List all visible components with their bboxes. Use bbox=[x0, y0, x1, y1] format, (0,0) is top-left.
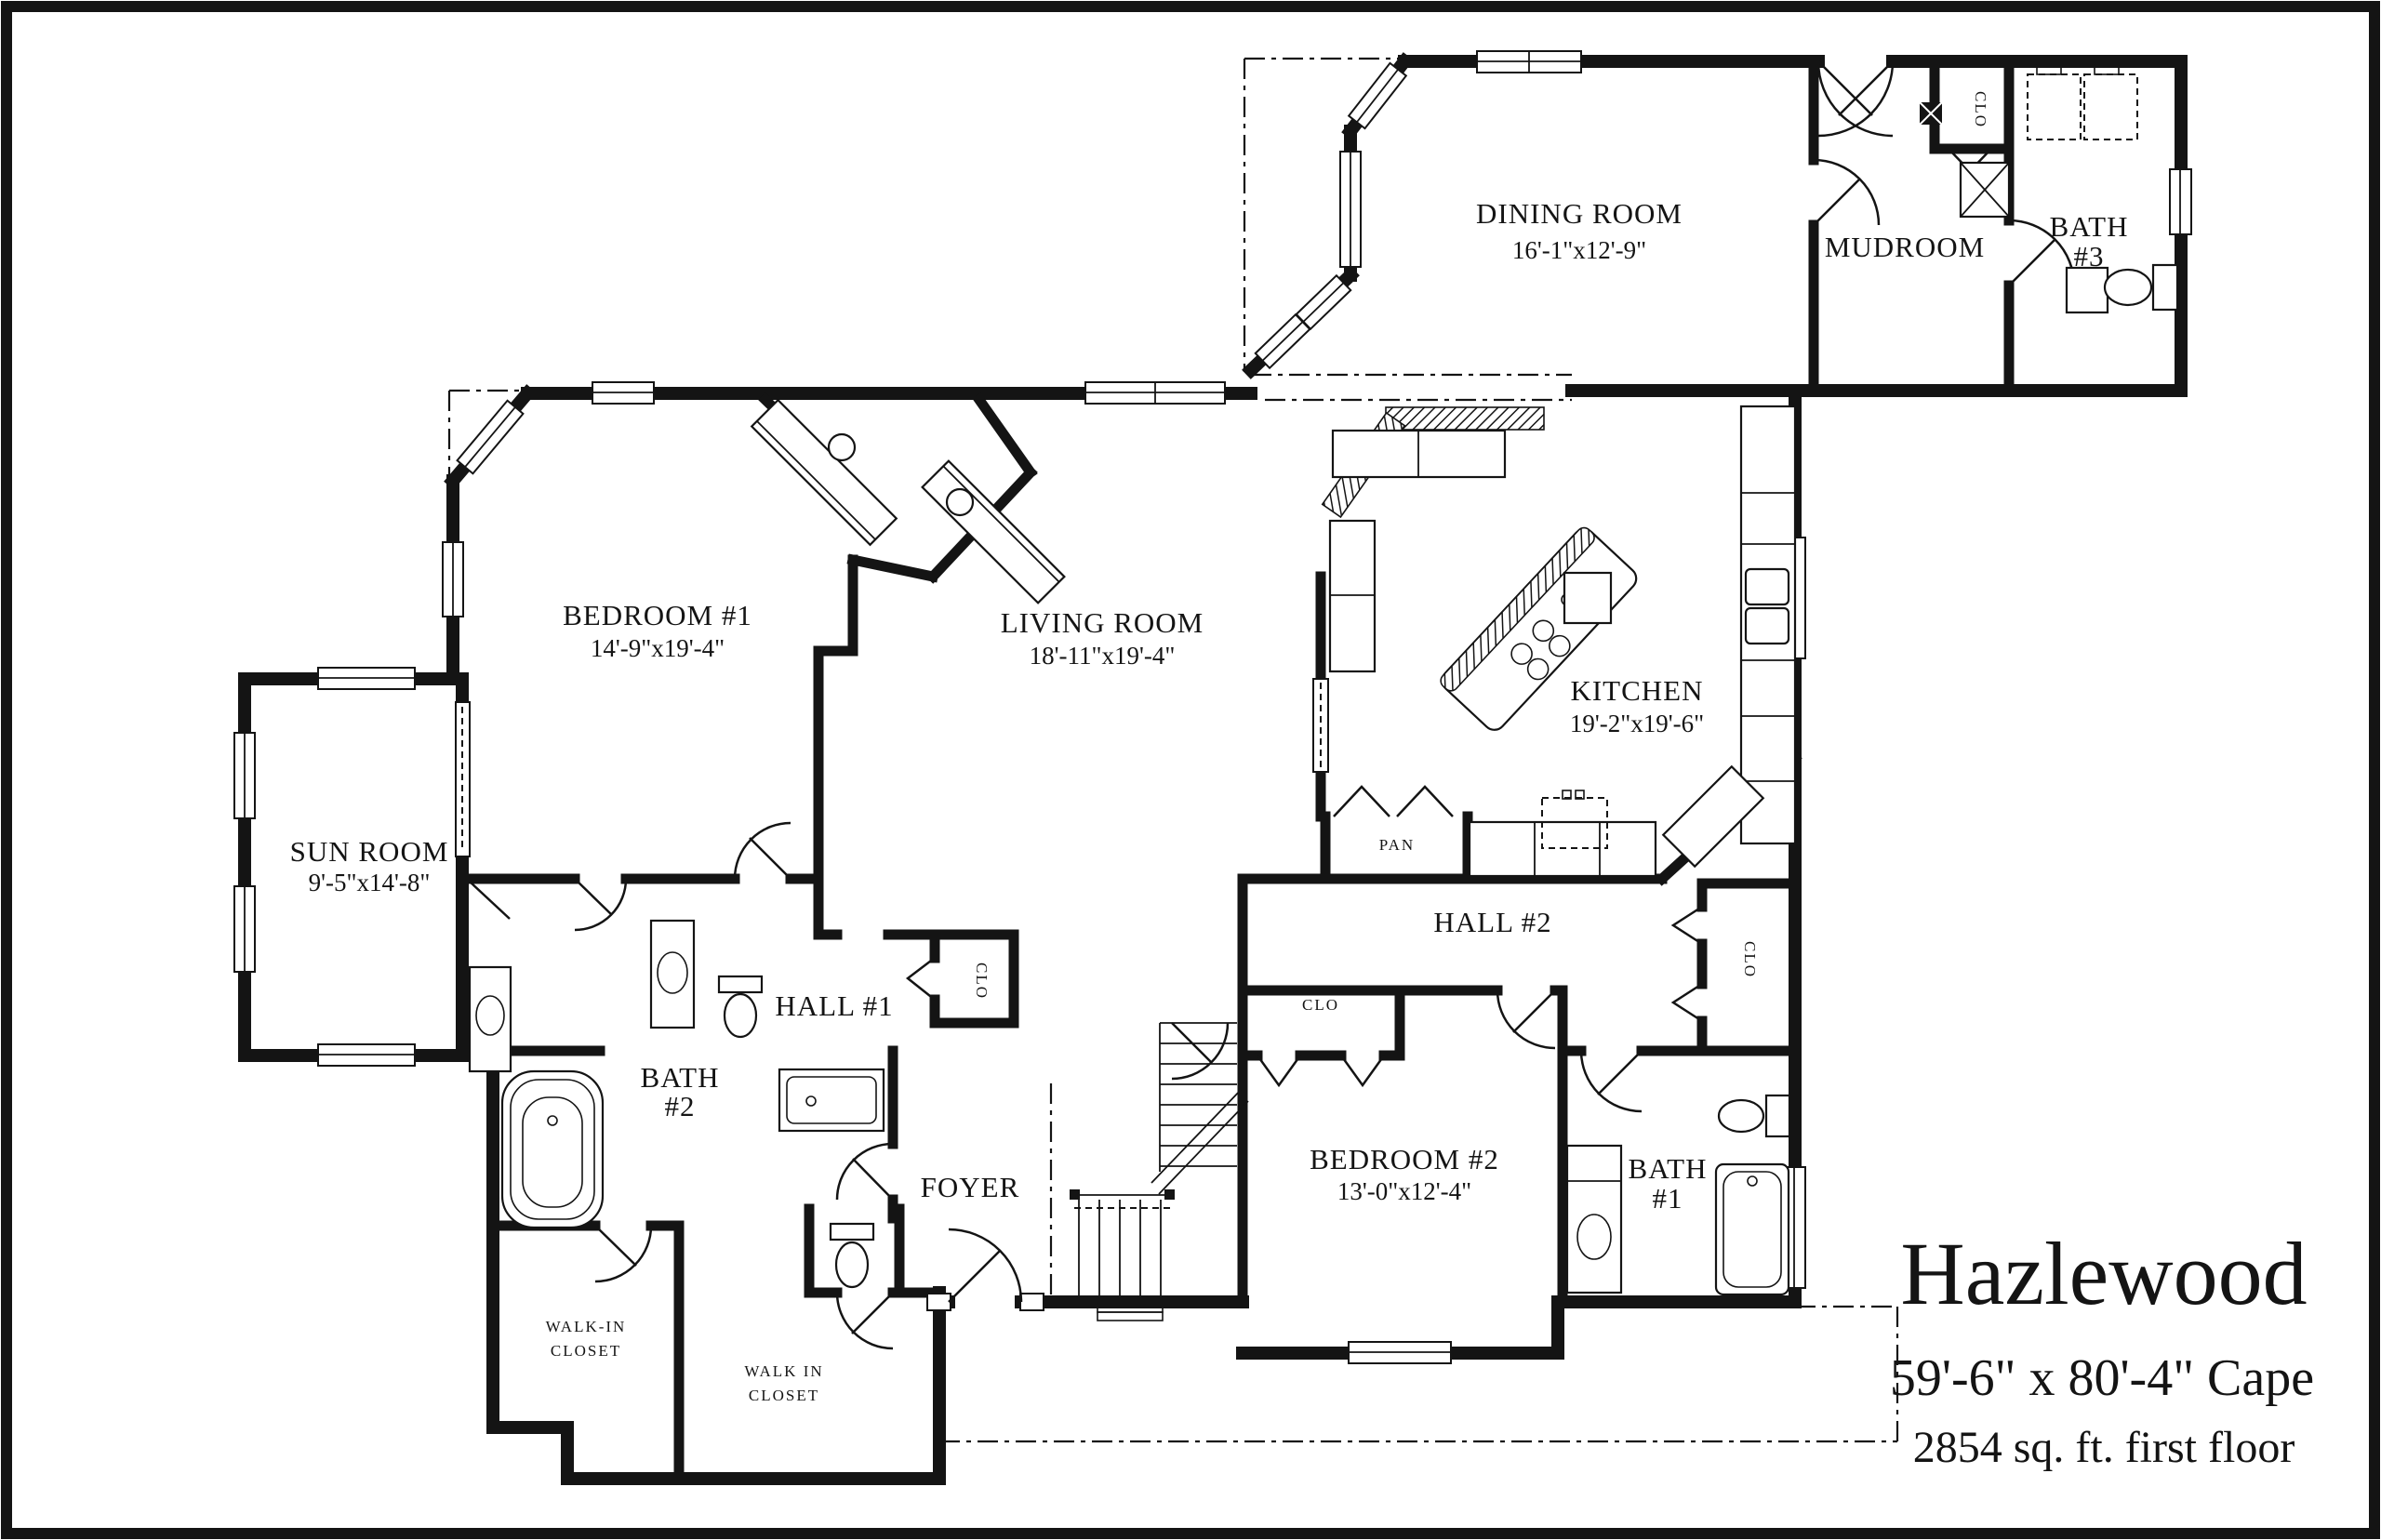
bath2-shower bbox=[779, 1069, 884, 1131]
room-label-sunroom: SUN ROOM bbox=[290, 835, 449, 868]
sidelight-right bbox=[1020, 1294, 1044, 1310]
label-clo-mudroom: CLO bbox=[1972, 91, 1989, 128]
room-dims-sunroom: 9'-5"x14'-8" bbox=[309, 869, 431, 896]
mudroom-entry-double-door bbox=[1818, 61, 1893, 136]
bath1-toilet bbox=[1719, 1095, 1789, 1136]
bath2-toilet bbox=[719, 976, 762, 1037]
window-bedroom1-west bbox=[443, 542, 463, 617]
window-bedroom2-bottom bbox=[1349, 1342, 1451, 1363]
kitchen-counter-nw bbox=[1333, 431, 1505, 477]
room-number-bath3: #3 bbox=[2074, 240, 2105, 272]
room-number-bath1: #1 bbox=[1653, 1182, 1683, 1215]
chimney-chase bbox=[1920, 102, 1942, 125]
label-pantry: PAN bbox=[1379, 836, 1415, 854]
pantry-bifold bbox=[1334, 787, 1453, 816]
window-bedroom1-diagonal bbox=[458, 401, 524, 473]
bath3-toilet bbox=[2105, 265, 2177, 310]
room-dims-bedroom2: 13'-0"x12'-4" bbox=[1337, 1177, 1471, 1205]
walkin1-door bbox=[595, 1226, 651, 1281]
title-block: Hazlewood 59'-6" x 80'-4" Cape 2854 sq. … bbox=[1890, 1224, 2314, 1472]
reference-lines bbox=[449, 59, 1897, 1441]
room-dims-dining: 16'-1"x12'-9" bbox=[1512, 236, 1646, 264]
bath1-tub bbox=[1716, 1164, 1789, 1294]
window-dining-diagonal-low-2 bbox=[1256, 314, 1310, 368]
room-number-bath2: #2 bbox=[665, 1090, 696, 1122]
room-label-kitchen: KITCHEN bbox=[1570, 674, 1703, 707]
room-label-bath3: BATH bbox=[2050, 210, 2129, 243]
kitchen-pass-window bbox=[1313, 679, 1328, 772]
bath2-door bbox=[575, 879, 626, 930]
bath2-vanity-1 bbox=[470, 967, 511, 1071]
dining-mudroom-door bbox=[1814, 160, 1879, 225]
window-dining-diagonal-upper bbox=[1349, 63, 1406, 128]
hall1-closet-bifold bbox=[908, 958, 935, 1000]
window-living-top bbox=[1085, 382, 1225, 404]
bedroom1-fireplace-flue bbox=[829, 434, 855, 460]
plan-size: 59'-6" x 80'-4" Cape bbox=[1890, 1349, 2314, 1407]
bath3-washer-dryer bbox=[2028, 65, 2137, 139]
angled-closet-partition bbox=[470, 882, 510, 919]
room-label-living: LIVING ROOM bbox=[1001, 606, 1204, 639]
bedroom1-fireplace bbox=[752, 400, 897, 545]
room-label-walkin2-line2: CLOSET bbox=[749, 1387, 819, 1404]
stairs bbox=[1070, 1023, 1248, 1321]
plan-area: 2854 sq. ft. first floor bbox=[1913, 1423, 2295, 1472]
window-bath3-east bbox=[2170, 169, 2191, 234]
room-label-bath2: BATH bbox=[641, 1061, 720, 1094]
room-dims-bedroom1: 14'-9"x19'-4" bbox=[591, 634, 725, 662]
window-sunroom-west-1 bbox=[234, 733, 255, 818]
room-label-dining: DINING ROOM bbox=[1476, 197, 1683, 230]
exterior-walls bbox=[245, 61, 2181, 1479]
room-dims-living: 18'-11"x19'-4" bbox=[1030, 642, 1176, 670]
window-sunroom-top bbox=[318, 668, 415, 689]
kitchen-bar-top bbox=[1386, 407, 1544, 430]
plan-title: Hazlewood bbox=[1900, 1224, 2307, 1323]
room-label-mudroom: MUDROOM bbox=[1825, 231, 1985, 263]
newel-post-right bbox=[1164, 1189, 1175, 1200]
bedroom1-door bbox=[735, 823, 791, 879]
room-label-bedroom1: BEDROOM #1 bbox=[563, 599, 752, 631]
bath2-inner-door bbox=[837, 1144, 893, 1200]
sunroom-slider-opening bbox=[456, 702, 470, 856]
bath1-door bbox=[1581, 1051, 1642, 1111]
water-closet-toilet bbox=[831, 1224, 873, 1287]
room-label-hall1: HALL #1 bbox=[775, 989, 893, 1022]
sidelight-left bbox=[927, 1294, 951, 1310]
label-clo-bedroom2: CLO bbox=[1302, 996, 1339, 1014]
kitchen-cabinet-west bbox=[1330, 521, 1375, 671]
room-label-hall2: HALL #2 bbox=[1433, 906, 1551, 938]
window-dining-top bbox=[1477, 51, 1581, 73]
room-label-bedroom2: BEDROOM #2 bbox=[1310, 1143, 1499, 1175]
window-bedroom1-top bbox=[592, 382, 654, 404]
bedroom2-door bbox=[1497, 990, 1555, 1048]
floor-plan-page: DINING ROOM 16'-1"x12'-9" MUDROOM BATH #… bbox=[0, 0, 2381, 1540]
newel-post-left bbox=[1070, 1189, 1080, 1200]
bath1-vanity bbox=[1567, 1146, 1621, 1293]
stair-door bbox=[1172, 1023, 1228, 1079]
walkin2-door bbox=[837, 1293, 893, 1348]
room-label-bath1: BATH bbox=[1629, 1152, 1708, 1185]
living-fireplace bbox=[923, 461, 1065, 604]
window-sunroom-bottom bbox=[318, 1044, 415, 1066]
kitchen-fixtures bbox=[1323, 406, 1795, 876]
bath2-soaking-tub bbox=[502, 1071, 603, 1228]
room-label-walkin1-line1: WALK-IN bbox=[546, 1318, 627, 1335]
living-fireplace-flue bbox=[947, 489, 973, 515]
window-sunroom-west-2 bbox=[234, 886, 255, 972]
room-label-walkin2-line1: WALK IN bbox=[744, 1362, 823, 1380]
window-dining-west bbox=[1340, 152, 1361, 267]
room-dims-kitchen: 19'-2"x19'-6" bbox=[1570, 710, 1704, 737]
bath2-vanity-2 bbox=[651, 921, 694, 1028]
window-dining-diagonal-low-1 bbox=[1297, 275, 1350, 329]
floor-plan-drawing: DINING ROOM 16'-1"x12'-9" MUDROOM BATH #… bbox=[0, 0, 2381, 1540]
bath3-shower bbox=[1961, 163, 2009, 217]
kitchen-island-cabinet bbox=[1564, 573, 1611, 623]
room-label-foyer: FOYER bbox=[921, 1171, 1020, 1203]
label-clo-hall1: CLO bbox=[973, 962, 991, 1000]
foyer-entry-door bbox=[949, 1229, 1021, 1302]
bath3-vanity bbox=[2067, 268, 2108, 312]
room-label-walkin1-line2: CLOSET bbox=[551, 1342, 621, 1360]
label-clo-hall2: CLO bbox=[1741, 941, 1759, 978]
